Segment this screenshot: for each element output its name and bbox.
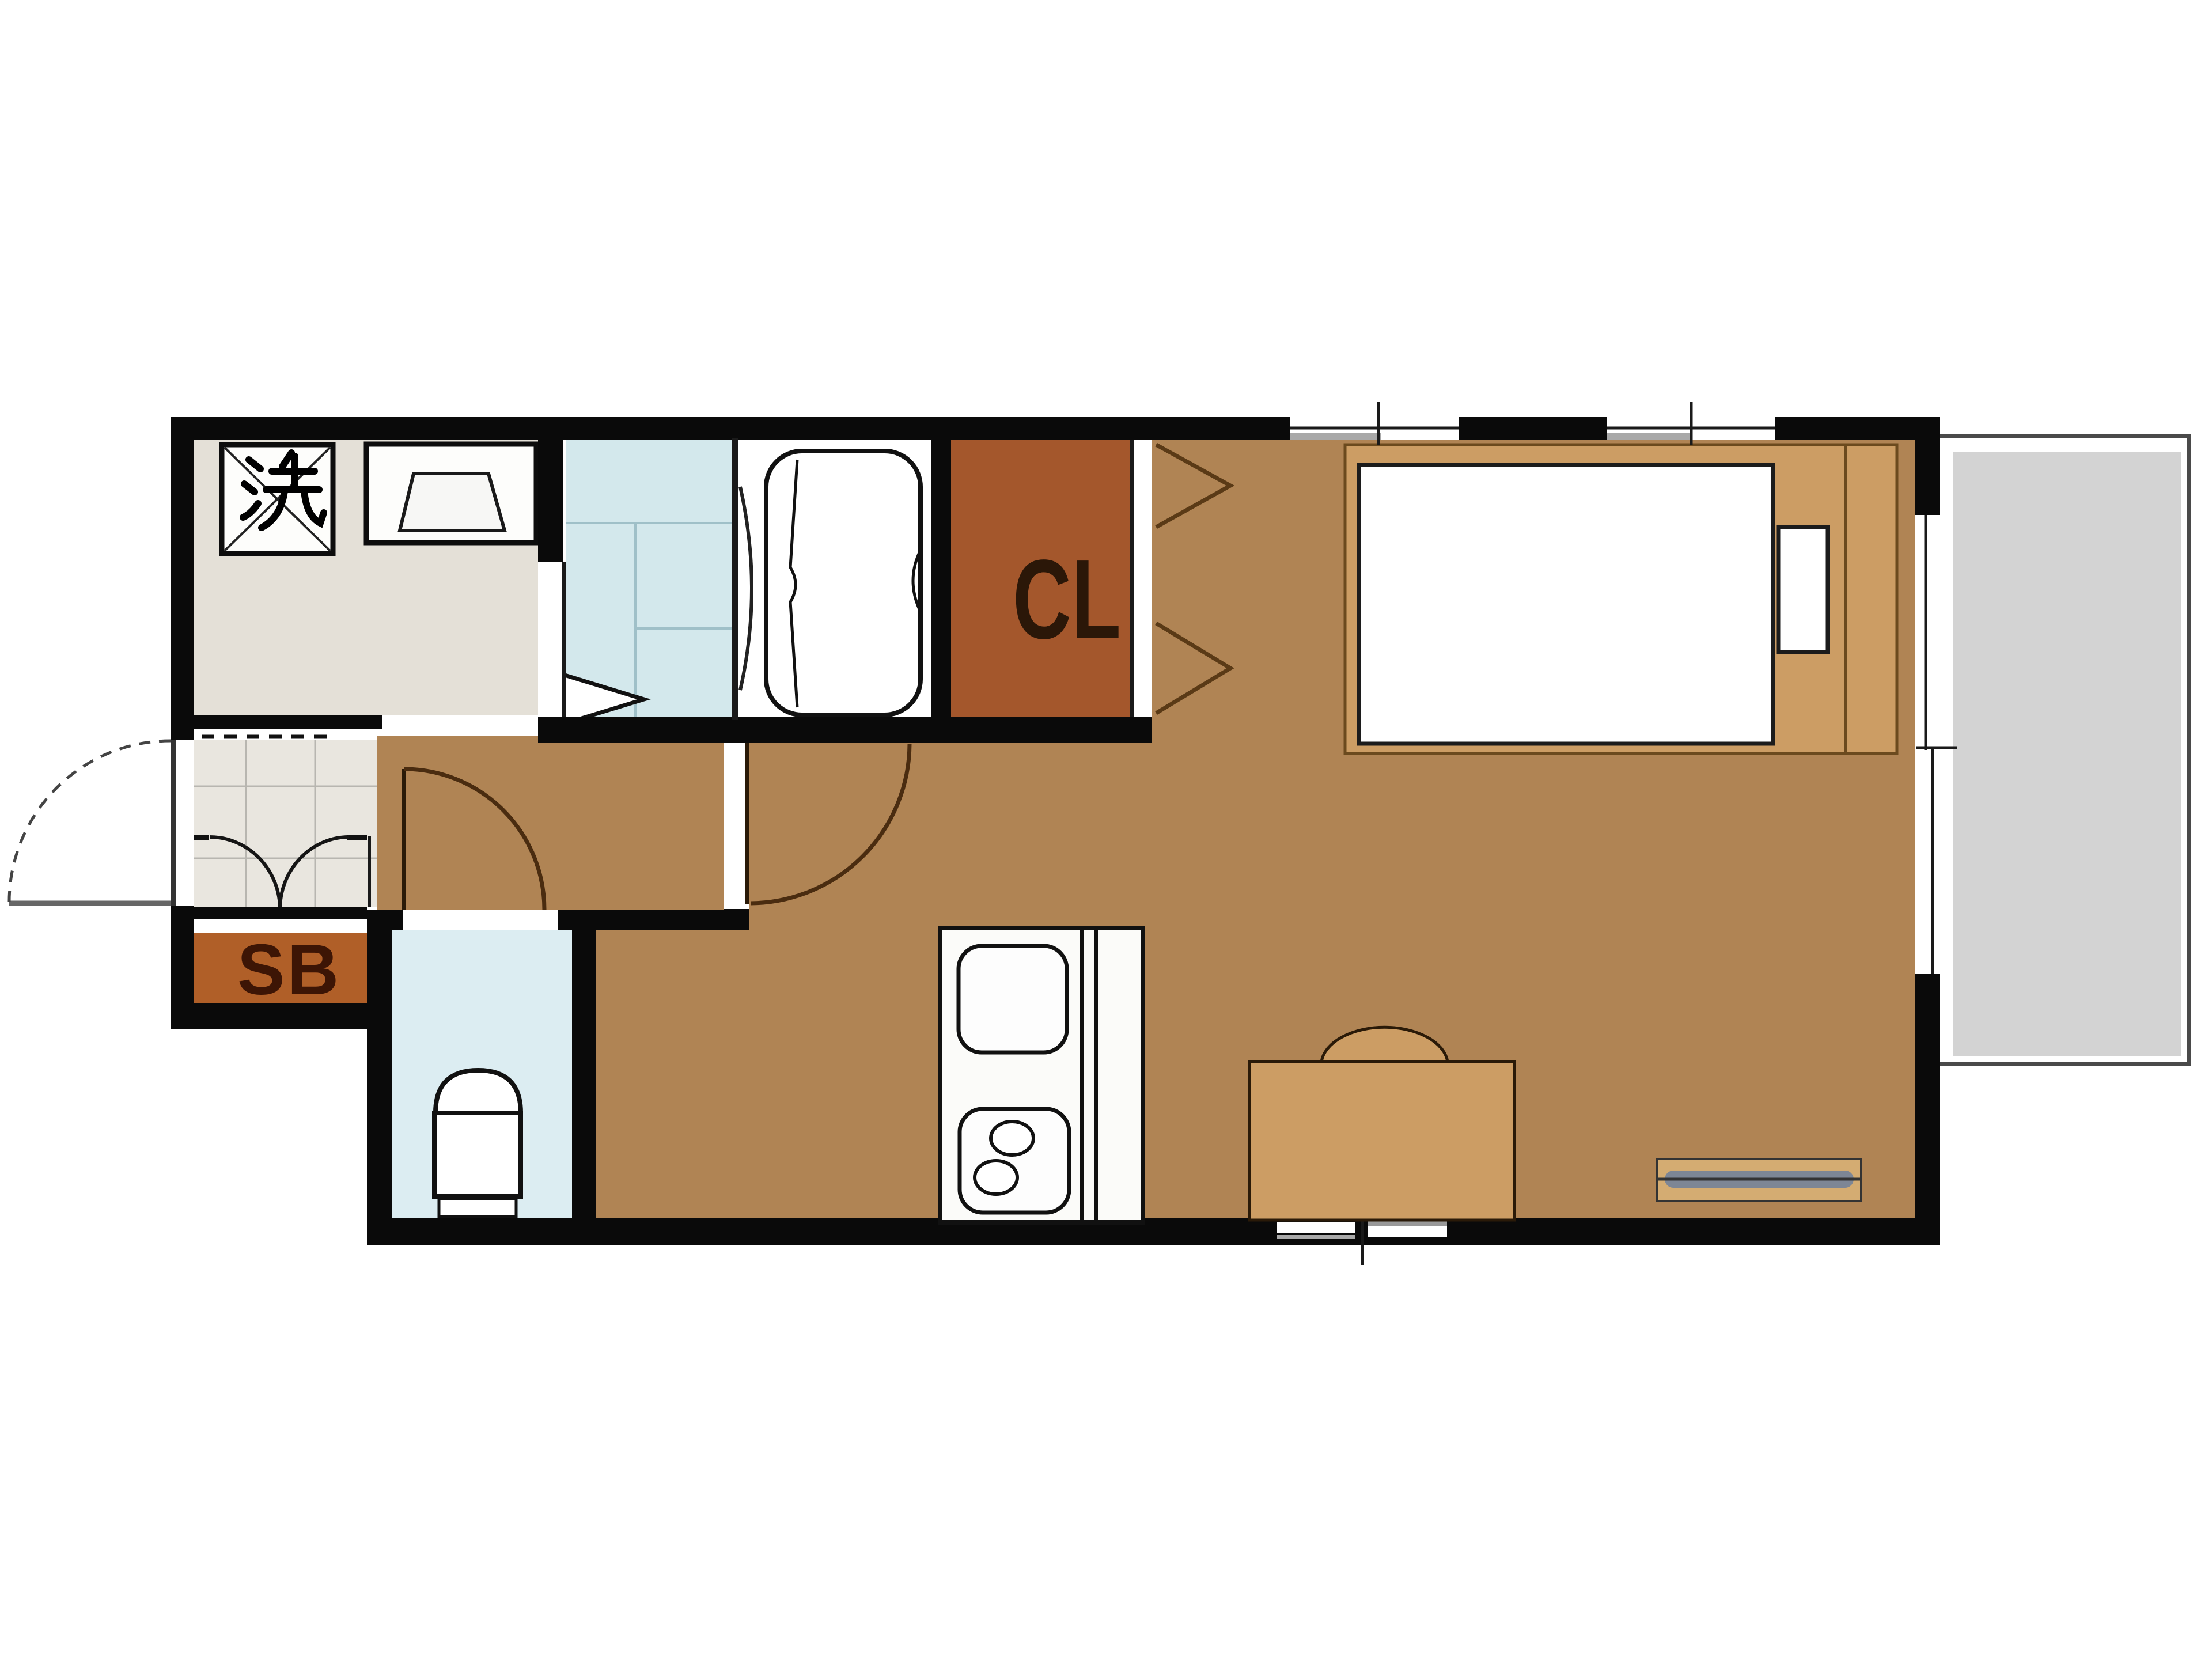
svg-text:SB: SB xyxy=(237,930,341,1010)
svg-text:CL: CL xyxy=(1013,536,1121,662)
